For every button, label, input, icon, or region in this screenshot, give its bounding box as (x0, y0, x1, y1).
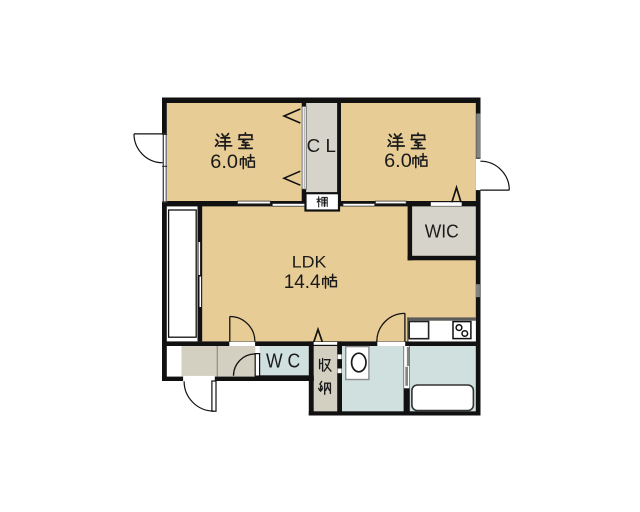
svg-text:C L: C L (307, 135, 336, 156)
svg-text:W C: W C (266, 349, 300, 372)
svg-text:14.4: 14.4 (284, 272, 321, 293)
svg-text:6.0: 6.0 (210, 152, 238, 173)
svg-text:6.0: 6.0 (384, 151, 412, 172)
svg-text:WIC: WIC (425, 220, 459, 241)
svg-text:LDK: LDK (292, 252, 327, 271)
